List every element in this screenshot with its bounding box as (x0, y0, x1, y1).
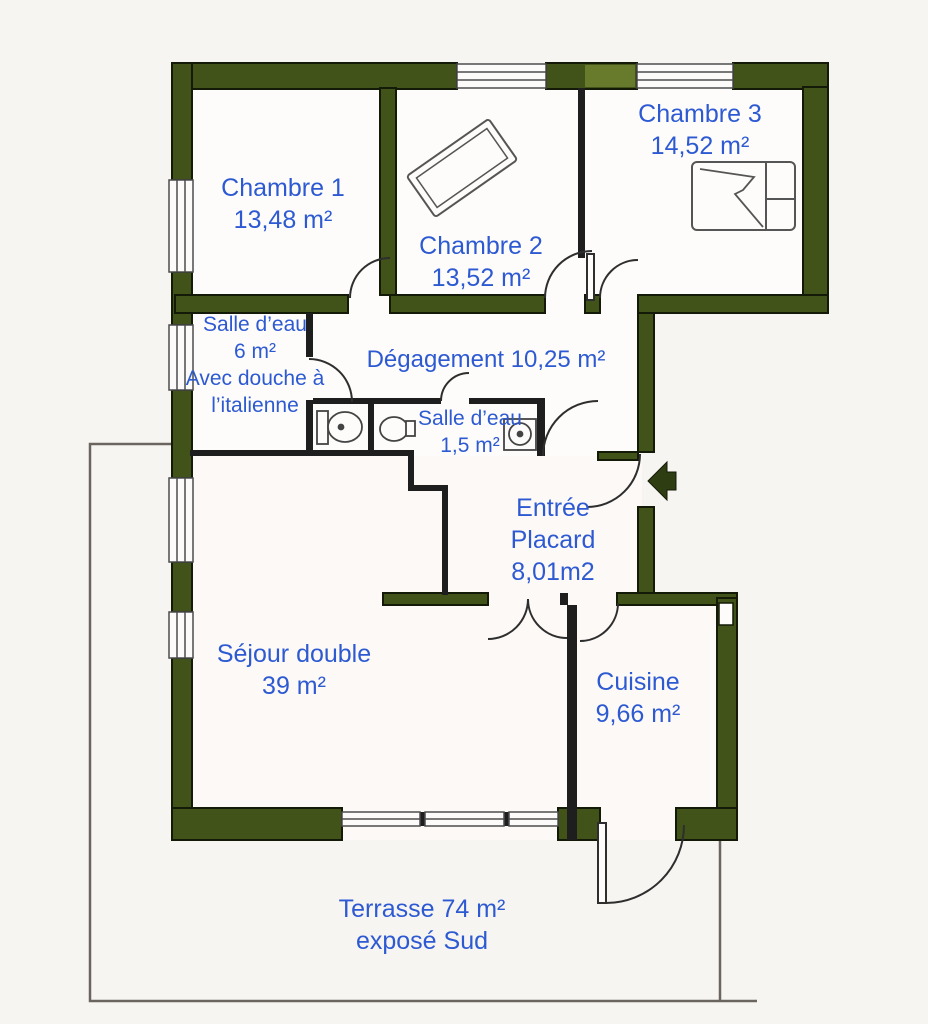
room-label-chambre-1: Chambre 1 13,48 m² (221, 172, 345, 236)
room-label-terrasse: Terrasse 74 m² exposé Sud (339, 893, 506, 957)
floor-plan-page: Chambre 1 13,48 m² Chambre 2 13,52 m² Ch… (0, 0, 928, 1024)
room-label-chambre-2: Chambre 2 13,52 m² (419, 230, 543, 294)
room-label-cuisine: Cuisine 9,66 m² (596, 666, 681, 730)
window-icon (509, 812, 558, 826)
room-label-chambre-3: Chambre 3 14,52 m² (638, 98, 762, 162)
duct-notch (719, 603, 733, 625)
floor-plan-drawing (0, 0, 928, 1024)
wall-highlight (585, 65, 635, 87)
room-label-entree: Entrée Placard 8,01m2 (511, 492, 596, 588)
room-label-salle-deau-6: Salle d’eau 6 m² Avec douche à l’italien… (186, 312, 325, 420)
window-icon (169, 180, 193, 272)
window-icon (457, 64, 546, 88)
window-icon (637, 64, 733, 88)
room-label-sejour: Séjour double 39 m² (217, 638, 371, 702)
bed-icon (692, 162, 795, 230)
window-icon (425, 812, 504, 826)
room-label-degagement: Dégagement 10,25 m² (367, 345, 606, 376)
room-label-salle-deau-1-5: Salle d’eau 1,5 m² (418, 406, 522, 460)
window-icon (342, 812, 420, 826)
window-icon (169, 612, 193, 658)
entrance-arrow-icon (648, 462, 676, 500)
window-icon (169, 478, 193, 562)
